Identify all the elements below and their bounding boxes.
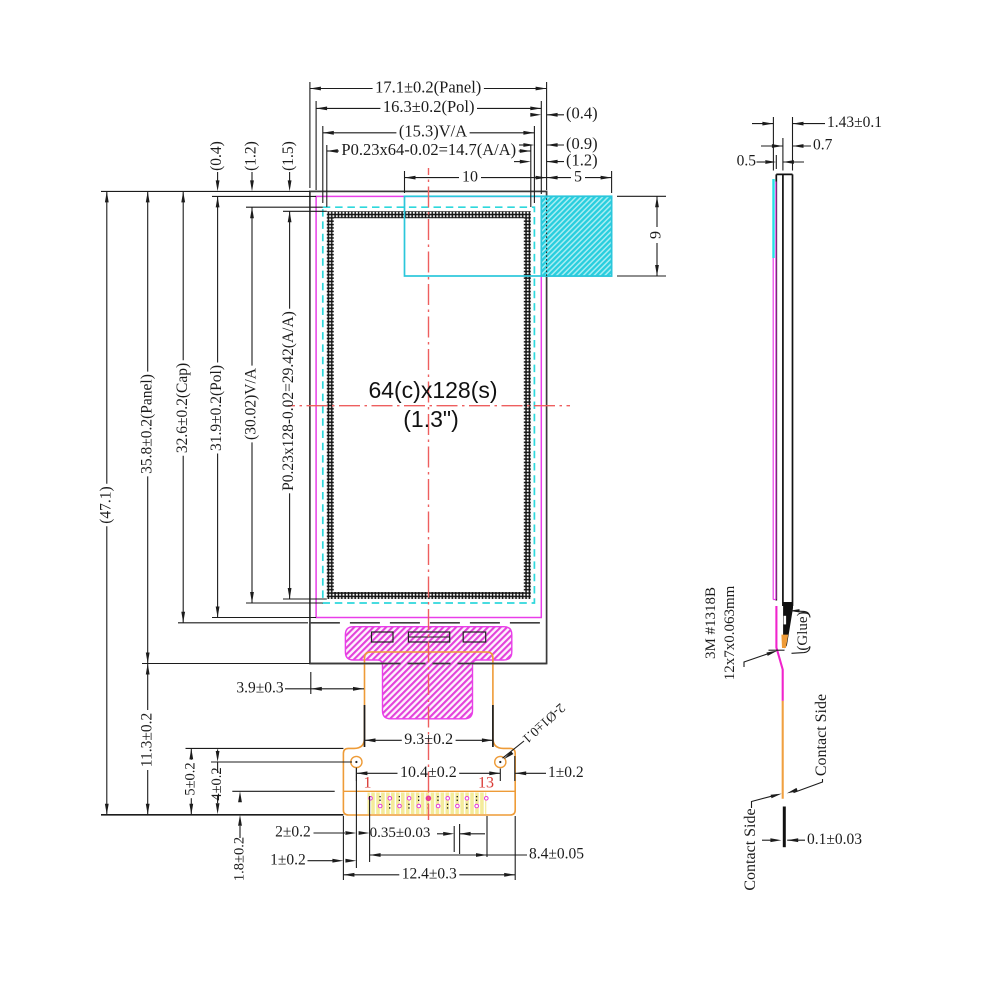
svg-text:(30.02)V/A: (30.02)V/A: [243, 367, 260, 440]
svg-text:(1.3"): (1.3"): [403, 406, 458, 432]
svg-text:(1.2): (1.2): [243, 141, 260, 171]
svg-text:3M #1318B: 3M #1318B: [703, 587, 719, 659]
svg-text:0.1±0.03: 0.1±0.03: [807, 831, 862, 848]
svg-text:0.35±0.03: 0.35±0.03: [370, 825, 431, 841]
svg-text:8.4±0.05: 8.4±0.05: [529, 846, 584, 863]
svg-text:1.43±0.1: 1.43±0.1: [827, 114, 882, 131]
svg-text:(15.3)V/A: (15.3)V/A: [399, 122, 467, 141]
svg-text:10.4±0.2: 10.4±0.2: [400, 764, 457, 781]
svg-text:32.6±0.2(Cap): 32.6±0.2(Cap): [174, 363, 191, 453]
svg-text:0.7: 0.7: [813, 137, 833, 154]
svg-text:9.3±0.2: 9.3±0.2: [404, 731, 453, 748]
svg-text:35.8±0.2(Panel): 35.8±0.2(Panel): [138, 374, 155, 474]
svg-text:4±0.2: 4±0.2: [209, 767, 225, 800]
svg-text:1±0.2: 1±0.2: [270, 851, 306, 868]
svg-text:31.9±0.2(Pol): 31.9±0.2(Pol): [208, 365, 225, 451]
svg-text:11.3±0.2: 11.3±0.2: [138, 713, 155, 767]
svg-text:(Glue): (Glue): [795, 611, 811, 650]
svg-text:Contact Side: Contact Side: [813, 694, 830, 776]
svg-text:17.1±0.2(Panel): 17.1±0.2(Panel): [375, 77, 481, 96]
svg-text:12x7x0.063mm: 12x7x0.063mm: [722, 585, 738, 680]
svg-text:1±0.2: 1±0.2: [548, 764, 584, 781]
svg-text:(0.4): (0.4): [208, 141, 225, 171]
svg-text:1.8±0.2: 1.8±0.2: [231, 837, 247, 881]
svg-text:9: 9: [648, 231, 665, 239]
svg-text:P0.23x128-0.02=29.42(A/A): P0.23x128-0.02=29.42(A/A): [280, 311, 297, 491]
svg-text:64(c)x128(s): 64(c)x128(s): [368, 377, 497, 403]
svg-text:Contact Side: Contact Side: [742, 808, 759, 890]
svg-text:13: 13: [478, 775, 494, 792]
svg-text:(1.2): (1.2): [566, 150, 598, 169]
svg-text:3.9±0.3: 3.9±0.3: [236, 679, 284, 696]
svg-text:16.3±0.2(Pol): 16.3±0.2(Pol): [383, 97, 475, 116]
svg-text:2±0.2: 2±0.2: [275, 824, 311, 841]
svg-text:10: 10: [462, 168, 478, 185]
svg-text:5: 5: [574, 168, 582, 185]
svg-text:0.5: 0.5: [737, 153, 757, 170]
svg-text:1: 1: [364, 775, 372, 792]
svg-text:12.4±0.3: 12.4±0.3: [402, 865, 457, 882]
svg-text:(1.5): (1.5): [280, 141, 297, 171]
svg-text:P0.23x64-0.02=14.7(A/A): P0.23x64-0.02=14.7(A/A): [341, 140, 516, 159]
svg-text:(0.4): (0.4): [566, 104, 598, 123]
svg-text:5±0.2: 5±0.2: [183, 762, 199, 795]
svg-text:(47.1): (47.1): [97, 486, 114, 523]
